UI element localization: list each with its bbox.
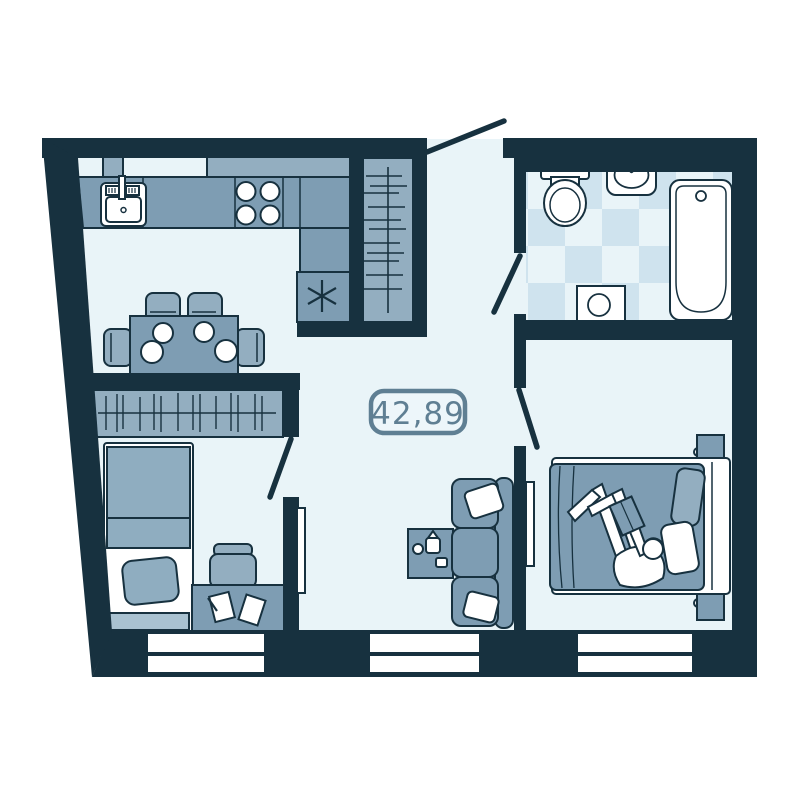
pillow-shape <box>121 556 179 605</box>
washer-body <box>577 286 625 324</box>
single-bed <box>104 443 193 634</box>
plate <box>215 340 237 362</box>
wall-dining-bedroom <box>80 373 300 390</box>
sofa-cushion <box>452 528 498 577</box>
desk-chair-seat <box>210 554 256 588</box>
bedroom-wardrobe <box>90 390 283 437</box>
teapot <box>426 538 440 553</box>
floor-plan: 42,89 <box>0 0 800 800</box>
wall-right <box>732 138 757 677</box>
wall-top-right <box>503 138 757 158</box>
wall-bathroom-bottom <box>514 320 732 340</box>
pillow <box>121 556 179 605</box>
window-pane <box>370 656 479 672</box>
tv-living-room <box>297 508 305 593</box>
kitchen-counter-return <box>300 228 350 272</box>
dining-chair <box>104 329 132 366</box>
sink-basin <box>106 197 141 222</box>
window-pane <box>578 656 692 672</box>
wall-closet-right <box>413 138 427 337</box>
bed-blanket <box>107 447 190 518</box>
remote <box>436 558 447 567</box>
bed-footboard <box>109 613 189 630</box>
plate <box>153 323 173 343</box>
faucet-icon <box>119 176 125 199</box>
plate <box>141 341 163 363</box>
window-pane <box>578 634 692 652</box>
window-pane <box>148 634 264 652</box>
washing-machine <box>577 286 625 324</box>
burner <box>237 206 256 225</box>
tv-bedroom <box>526 482 534 566</box>
bedroom <box>550 435 730 620</box>
wall-kitchen-bottom <box>297 322 427 337</box>
wall-kitchen-right <box>350 138 363 337</box>
wall-bedroom-door-upper <box>283 390 299 437</box>
burner <box>261 206 280 225</box>
kitchen-vent-block <box>103 155 123 177</box>
window-pane <box>148 656 264 672</box>
sofa <box>452 478 513 628</box>
wall-bathroom-left-upper <box>514 138 526 253</box>
wall-bathroom-top <box>514 158 757 172</box>
wall-living-bedroom-lower <box>514 446 526 630</box>
burner <box>261 182 280 201</box>
bathtub <box>670 180 732 320</box>
wall-top-left <box>42 138 420 158</box>
burner <box>237 182 256 201</box>
desk <box>192 585 285 633</box>
entry-closet <box>362 158 413 322</box>
kitchen-upper-cabinet <box>207 155 350 177</box>
kitchen-sink <box>101 176 146 226</box>
cup <box>413 544 423 554</box>
area-label-text: 42,89 <box>371 396 465 432</box>
blanket-fold <box>107 518 190 548</box>
floor-plan-page: 42,89 <box>0 0 800 800</box>
dining-chair <box>236 329 264 366</box>
window-pane <box>370 634 479 652</box>
plate <box>194 322 214 342</box>
wall-living-bedroom-upper <box>514 340 526 388</box>
area-label: 42,89 <box>371 391 465 433</box>
